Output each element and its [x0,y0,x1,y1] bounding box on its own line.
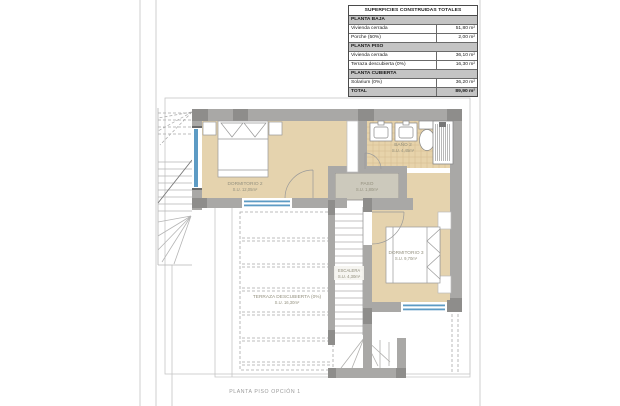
table-row: Vivienda cerrada 51,80 m² [349,25,477,34]
floorplan-drawing: DORMITORIO 2 S.U. 12,05m² BAÑO 2 S.U. 4,… [0,0,620,406]
terraza-area: S.U. 16,30m² [275,300,300,305]
dormitorio2-area: S.U. 12,05m² [233,187,258,192]
surfaces-table-title: SUPERFICIES CONSTRUIDAS TOTALES [349,6,477,16]
window-dormitorio3-south [401,302,447,312]
bano2-label: BAÑO 2 [394,141,412,148]
bano2-area: S.U. 4,45m² [392,148,415,153]
table-row: Vivienda cerrada 36,10 m² [349,52,477,61]
escalera-area: S.U. 4,30m² [338,274,361,279]
exterior-stair [158,108,192,265]
table-row-section: PLANTA CUBIERTA [349,70,477,79]
nightstand [269,122,282,135]
table-row: Porche (50%) 2,00 m² [349,34,477,43]
sink [370,121,392,141]
table-row: Terraza descubierta (0%) 16,30 m² [349,61,477,70]
dormitorio3-area: S.U. 9,70m² [395,256,418,261]
dormitorio3-floor [407,173,450,207]
paso-area: S.U. 1,80m² [356,187,379,192]
window-dormitorio2-south [242,198,292,208]
plan-caption: PLANTA PISO OPCIÓN 1 [229,388,301,395]
table-row-section: PLANTA BAJA [349,16,477,25]
window-dormitorio2-west [192,126,202,190]
table-row-section: PLANTA PISO [349,43,477,52]
nightstand [203,122,216,135]
surfaces-table: SUPERFICIES CONSTRUIDAS TOTALES PLANTA B… [348,5,478,97]
table-row-total: TOTAL 89,90 m² [349,88,477,96]
table-row: Solarium (0%) 36,20 m² [349,79,477,88]
escalera-label: ESCALERA [338,268,361,273]
shower [433,121,453,164]
floorplan-page: DORMITORIO 2 S.U. 12,05m² BAÑO 2 S.U. 4,… [0,0,620,406]
sink [395,121,417,141]
